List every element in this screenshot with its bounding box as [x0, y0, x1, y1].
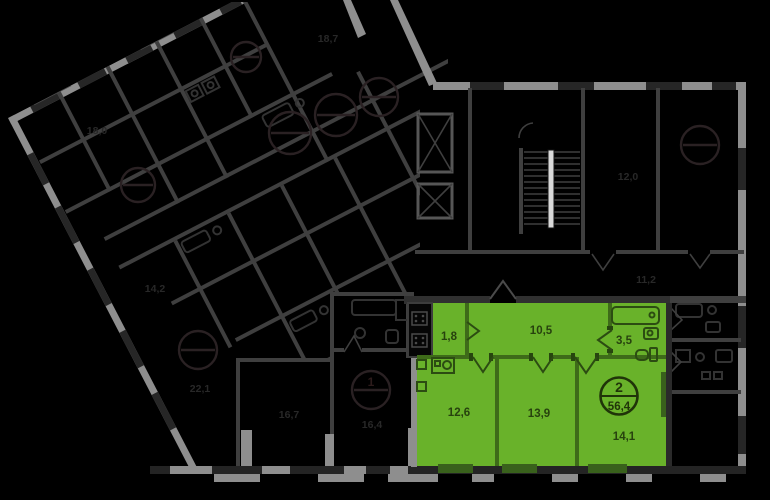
selected-apartment-badge[interactable]: 2 56,4 [601, 378, 638, 415]
dim-room-area: 12,0 [618, 171, 639, 183]
dim-room-area: 16,7 [279, 409, 300, 421]
room-area-room-2: 14,1 [613, 431, 636, 443]
room-area-kitchen: 12,6 [448, 407, 470, 419]
dim-room-area: 22,1 [190, 383, 211, 395]
stair-stringer [548, 150, 554, 228]
room-area-room-1: 13,9 [528, 408, 550, 420]
badge-room-count: 2 [615, 379, 623, 395]
dim-room-area: 18,0 [87, 125, 108, 137]
selected-apartment[interactable]: 1,8 10,5 3,5 12,6 13,9 14,1 2 56,4 [404, 281, 672, 473]
room-area-bathroom: 3,5 [616, 335, 633, 347]
dim-room-area: 18,7 [318, 33, 339, 45]
badge-total-area: 56,4 [608, 401, 631, 413]
floor-plan-canvas: 1 18,0 18,7 14,2 22,1 16,7 16,4 12,0 11,… [0, 0, 770, 500]
dim-room-area: 16,4 [362, 419, 383, 431]
floor-plan: 1 18,0 18,7 14,2 22,1 16,7 16,4 12,0 11,… [0, 0, 770, 500]
utility-shaft [408, 303, 432, 357]
room-area-hallway: 10,5 [530, 325, 553, 337]
room-area-wardrobe: 1,8 [441, 331, 458, 343]
dim-badge-rooms: 1 [368, 375, 375, 389]
dim-room-area: 11,2 [636, 274, 656, 286]
dim-room-area: 14,2 [145, 283, 166, 295]
